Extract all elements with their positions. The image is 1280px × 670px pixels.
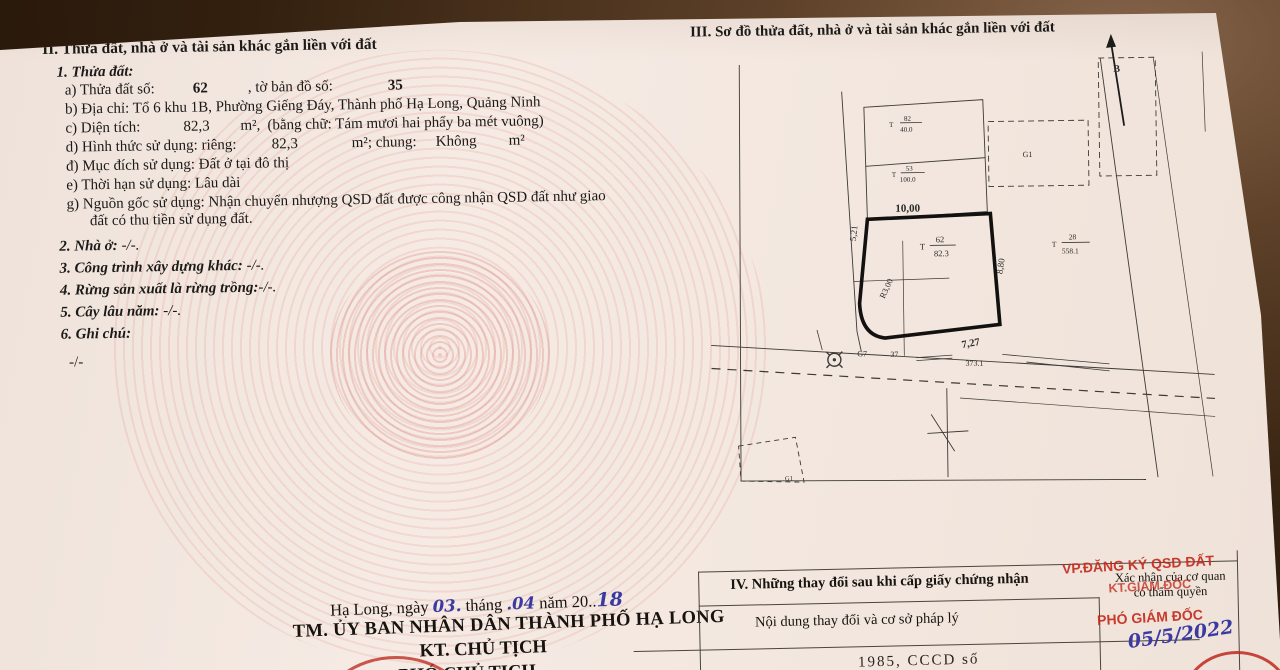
partial-text-line: 1985, CCCD số [858, 651, 980, 670]
g1-bottom-label: G1 [785, 475, 793, 482]
north-arrow-icon [1111, 42, 1124, 126]
label-37: 37 [890, 350, 898, 359]
parcel-right-num: 28 [1069, 232, 1077, 241]
parcel-top-outline [864, 100, 988, 220]
purpose-line: đ) Mục đích sử dụng: Đất ở tại đô thị [66, 155, 289, 176]
area-label: c) Diện tích: [65, 119, 140, 137]
date-month-handwritten: .04 [506, 593, 535, 613]
measure-vertical [903, 241, 905, 356]
item5-label: 5. Cây lâu năm: [60, 303, 159, 321]
cadastral-diagram: B T 82 40.0 T 53 100.0 10,00 T 62 82.3 T… [695, 26, 1223, 493]
item2-value: -/-. [118, 238, 140, 254]
term-line: e) Thời hạn sử dụng: Lâu dài [66, 175, 240, 195]
dim-bottom-label: 7,27 [961, 337, 981, 351]
section4-heading: IV. Những thay đổi sau khi cấp giấy chứn… [730, 571, 1029, 594]
parcel-main-t: T [920, 241, 926, 251]
use-form-private-value: 82,3 [272, 136, 299, 153]
parcel-divider [866, 158, 986, 167]
map-sheet-value: 35 [388, 77, 403, 94]
parcel-top-den: 40.0 [900, 126, 913, 134]
item3-value: -/-. [243, 258, 265, 274]
use-form-label: d) Hình thức sử dụng: riêng: [66, 137, 237, 157]
dashed-parcel-bottom [738, 437, 804, 483]
col1-header: Nội dung thay đổi và cơ sở pháp lý [755, 610, 959, 631]
label-373: 373.1 [965, 359, 983, 368]
item1-label: 1. Thửa đất: [56, 64, 133, 82]
boundary-bottom [741, 475, 1146, 485]
station-tick-sw [826, 365, 829, 368]
station-tick-se [839, 365, 842, 368]
date-mid: tháng [465, 595, 502, 615]
road-right-line1 [1100, 57, 1158, 478]
dim-right-label: 8,80 [994, 257, 1006, 275]
use-form-unit2: m² [509, 132, 525, 149]
north-box [1098, 57, 1157, 176]
parcel-mid-t: T [892, 171, 897, 179]
station-dot [833, 359, 835, 361]
item6-label: 6. Ghi chú: [61, 326, 132, 344]
date-suffix: năm 20.. [539, 591, 597, 612]
chairman-line: KT. CHỦ TỊCH [419, 637, 547, 662]
use-form-unit: m²; chung: [352, 134, 417, 152]
table-left-border [698, 572, 702, 670]
parcel-number-label: a) Thửa đất số: [65, 81, 155, 99]
area-unit: m², [240, 118, 260, 135]
date-day-handwritten: 03. [432, 596, 461, 616]
parcel-right-den: 558.1 [1062, 246, 1079, 255]
table-column-divider [1099, 597, 1102, 670]
date-year-handwritten: 18 [596, 588, 623, 611]
dim-left-label: 5,21 [848, 225, 860, 242]
item4-label: 4. Rừng sản xuất là rừng trồng: [60, 280, 259, 299]
boundary-left [735, 65, 745, 481]
use-form-shared-value: Không [436, 133, 477, 151]
double-line-a1 [916, 355, 952, 358]
parcel-mid-num: 53 [906, 165, 914, 173]
area-value: 82,3 [183, 118, 210, 135]
parcel-top-num: 82 [904, 115, 912, 123]
survey-cross-h [927, 431, 968, 434]
origin-line2: đất có thu tiền sử dụng đất. [90, 211, 253, 231]
dim-top-label: 10,00 [895, 203, 920, 215]
tick-1 [817, 330, 822, 350]
border-right-segment [1202, 52, 1205, 132]
parcel-main-num: 62 [936, 234, 945, 244]
north-arrow-head [1106, 34, 1116, 48]
parcel-number-value: 62 [193, 80, 208, 97]
g7-label: G7 [857, 349, 867, 358]
parcel-main-outline [858, 213, 1000, 338]
table-row-divider [634, 639, 1200, 652]
item5-value: -/-. [159, 303, 181, 319]
boundary-inner [842, 91, 862, 351]
table-header-divider [699, 597, 1100, 607]
parcel-top-t: T [889, 121, 894, 129]
parcel-g1-outline [988, 120, 1089, 186]
photo-background: II. Thửa đất, nhà ở và tài sản khác gắn … [0, 0, 1280, 670]
item3-label: 3. Công trình xây dựng khác: [59, 258, 242, 277]
road-centerline [711, 361, 1214, 405]
parcel-right-t: T [1052, 240, 1057, 249]
item2-label: 2. Nhà ở: [59, 238, 118, 255]
certificate-page: II. Thửa đất, nhà ở và tài sản khác gắn … [0, 0, 1280, 670]
date-prefix: Hạ Long, ngày [330, 597, 429, 619]
north-label: B [1113, 64, 1120, 75]
g1-label: G1 [1022, 150, 1032, 159]
item6-value: -/- [69, 354, 83, 371]
measure-horizontal [853, 278, 949, 281]
item4-value: -/-. [258, 279, 276, 295]
road-lower-edge [960, 394, 1215, 420]
parcel-main-den: 82.3 [934, 248, 949, 258]
parcel-mid-den: 100.0 [900, 176, 916, 184]
map-sheet-label: , tờ bản đồ số: [248, 78, 333, 96]
